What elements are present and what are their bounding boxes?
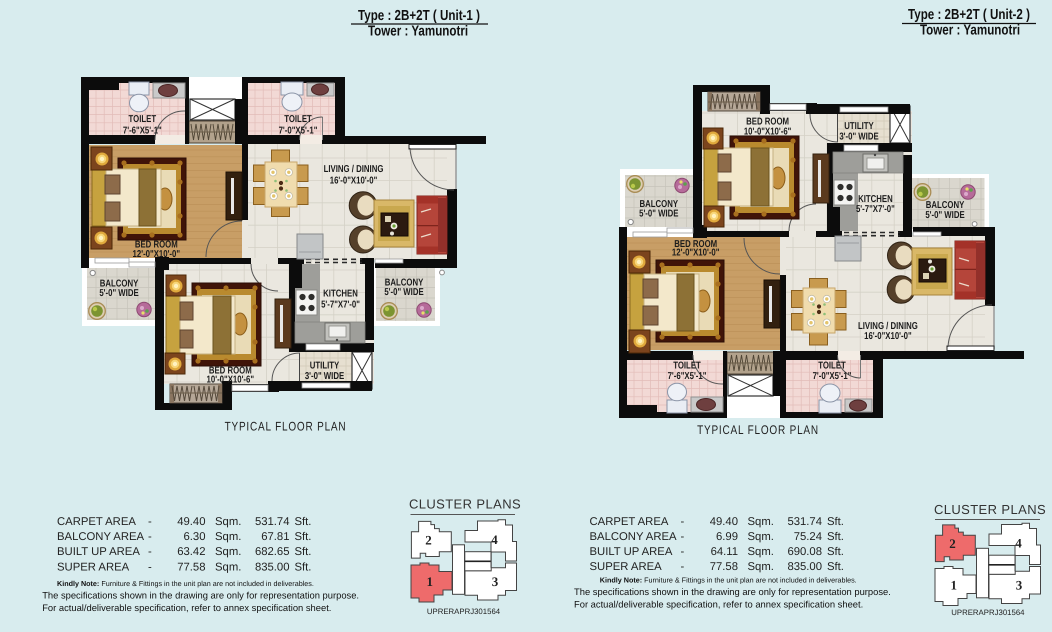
svg-text:1: 1 [951,578,958,593]
svg-text:Sft.: Sft. [295,516,312,528]
svg-text:Sqm.: Sqm. [215,531,241,543]
svg-text:Type : 2B+2T ( Unit-1 ): Type : 2B+2T ( Unit-1 ) [358,8,480,24]
svg-text:Sft.: Sft. [827,561,844,573]
svg-text:Sqm.: Sqm. [748,561,774,573]
svg-text:SUPER AREA: SUPER AREA [590,561,663,573]
svg-text:TOILET: TOILET [818,360,846,371]
svg-text:-: - [148,516,152,528]
svg-text:7'-6"X5'-1": 7'-6"X5'-1" [668,371,707,382]
svg-text:Sft.: Sft. [827,546,844,558]
svg-text:6.30: 6.30 [184,531,206,543]
svg-text:531.74: 531.74 [255,516,290,528]
svg-text:The specifications shown in th: The specifications shown in the drawing … [42,590,359,601]
svg-text:UPRERAPRJ301564: UPRERAPRJ301564 [427,607,501,616]
svg-text:-: - [148,561,152,573]
svg-text:SUPER AREA: SUPER AREA [57,561,130,573]
svg-text:5'-0" WIDE: 5'-0" WIDE [384,287,424,298]
svg-text:Tower : Yamunotri: Tower : Yamunotri [920,23,1020,39]
svg-text:7'-6"X5'-1": 7'-6"X5'-1" [123,125,162,136]
svg-text:2: 2 [949,536,956,551]
svg-text:5'-0" WIDE: 5'-0" WIDE [99,288,139,299]
svg-text:690.08: 690.08 [787,546,822,558]
svg-text:5'-0" WIDE: 5'-0" WIDE [925,210,965,221]
svg-text:TOILET: TOILET [673,360,701,371]
svg-text:16'-0"X10'-0": 16'-0"X10'-0" [864,331,912,342]
svg-text:Sqm.: Sqm. [748,516,774,528]
svg-text:835.00: 835.00 [255,561,290,573]
svg-text:-: - [148,546,152,558]
svg-text:10'-0"X10'-6": 10'-0"X10'-6" [207,374,255,385]
svg-text:3'-0" WIDE: 3'-0" WIDE [305,371,345,382]
svg-text:64.11: 64.11 [711,546,738,558]
svg-text:For actual/deliverable specifi: For actual/deliverable specification, re… [574,598,863,609]
svg-text:TYPICAL FLOOR PLAN: TYPICAL FLOOR PLAN [225,420,347,434]
svg-text:835.00: 835.00 [787,561,822,573]
svg-text:-: - [681,531,685,543]
svg-text:Sqm.: Sqm. [215,546,241,558]
svg-text:12'-0"X10'-0": 12'-0"X10'-0" [672,248,720,259]
svg-text:49.40: 49.40 [710,516,738,528]
svg-text:Sqm.: Sqm. [215,516,241,528]
svg-text:CARPET AREA: CARPET AREA [590,516,669,528]
svg-text:5'-7"X7'-0": 5'-7"X7'-0" [321,300,360,311]
svg-text:Sqm.: Sqm. [748,531,774,543]
svg-text:77.58: 77.58 [710,561,738,573]
svg-text:KITCHEN: KITCHEN [323,289,358,300]
svg-text:Type : 2B+2T ( Unit-2 ): Type : 2B+2T ( Unit-2 ) [908,7,1030,23]
svg-text:Sqm.: Sqm. [748,546,774,558]
svg-text:1: 1 [427,574,434,589]
svg-text:-: - [681,546,685,558]
svg-text:7'-0"X5'-1": 7'-0"X5'-1" [813,371,852,382]
svg-text:75.24: 75.24 [794,531,822,543]
svg-text:For actual/deliverable specifi: For actual/deliverable specification, re… [42,602,331,613]
svg-text:67.81: 67.81 [261,531,289,543]
svg-text:6.99: 6.99 [716,531,738,543]
svg-text:3: 3 [1016,578,1023,593]
svg-text:-: - [681,561,685,573]
svg-text:Sft.: Sft. [827,516,844,528]
svg-text:3'-0" WIDE: 3'-0" WIDE [839,131,879,142]
svg-text:-: - [681,516,685,528]
svg-text:CLUSTER PLANS: CLUSTER PLANS [934,502,1046,517]
svg-text:5'-7"X7'-0": 5'-7"X7'-0" [856,204,895,215]
svg-text:10'-0"X10'-6": 10'-0"X10'-6" [744,127,792,138]
svg-text:4: 4 [1015,536,1022,551]
svg-text:TYPICAL FLOOR PLAN: TYPICAL FLOOR PLAN [697,423,819,437]
svg-text:Sft.: Sft. [295,546,312,558]
svg-text:BALCONY AREA: BALCONY AREA [590,531,678,543]
svg-text:2: 2 [425,533,432,548]
svg-text:Tower : Yamunotri: Tower : Yamunotri [368,24,468,40]
svg-text:5'-0" WIDE: 5'-0" WIDE [639,209,679,220]
svg-text:TOILET: TOILET [284,114,312,125]
svg-text:4: 4 [491,532,498,547]
svg-text:Kindly Note: Furniture & Fitti: Kindly Note: Furniture & Fittings in the… [57,579,314,588]
svg-text:63.42: 63.42 [177,546,205,558]
svg-text:77.58: 77.58 [177,561,205,573]
svg-text:12'-0"X10'-0": 12'-0"X10'-0" [133,249,181,260]
svg-text:LIVING / DINING: LIVING / DINING [324,164,384,175]
svg-text:The specifications shown in th: The specifications shown in the drawing … [574,586,891,597]
svg-text:Sft.: Sft. [295,561,312,573]
svg-text:UTILITY: UTILITY [310,361,340,372]
svg-text:16'-0"X10'-0": 16'-0"X10'-0" [330,176,378,187]
svg-text:Sft.: Sft. [295,531,312,543]
svg-text:3: 3 [492,574,499,589]
svg-text:682.65: 682.65 [255,546,290,558]
svg-text:Sqm.: Sqm. [215,561,241,573]
svg-text:TOILET: TOILET [129,114,157,125]
svg-text:531.74: 531.74 [787,516,822,528]
svg-text:BUILT UP AREA: BUILT UP AREA [590,546,673,558]
svg-text:7'-0"X5'-1": 7'-0"X5'-1" [279,125,318,136]
svg-text:Kindly Note: Furniture & Fitti: Kindly Note: Furniture & Fittings in the… [600,576,857,585]
svg-text:CARPET AREA: CARPET AREA [57,516,136,528]
svg-text:BALCONY AREA: BALCONY AREA [57,531,145,543]
svg-text:-: - [148,531,152,543]
svg-text:CLUSTER PLANS: CLUSTER PLANS [409,497,521,512]
svg-text:Sft.: Sft. [827,531,844,543]
svg-text:UPRERAPRJ301564: UPRERAPRJ301564 [951,608,1025,617]
svg-text:BUILT UP AREA: BUILT UP AREA [57,546,140,558]
svg-text:49.40: 49.40 [177,516,205,528]
